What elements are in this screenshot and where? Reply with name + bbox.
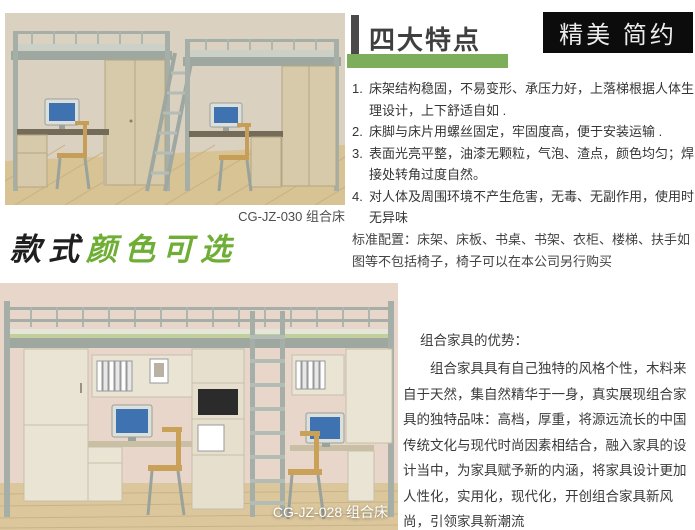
- feature-text-3: 表面光亮平整，油漆无颗粒，气泡、渣点，颜色均匀；焊接处转角过度自然。: [369, 146, 694, 183]
- slogan-green-part: 颜色可选: [86, 232, 238, 267]
- section-title: 四大特点: [369, 20, 481, 57]
- product-code-caption-1: CG-JZ-030 组合床: [150, 206, 345, 225]
- feature-item-3: 3. 表面光亮平整，油漆无颗粒，气泡、渣点，颜色均匀；焊接处转角过度自然。: [352, 143, 694, 186]
- feature-text-2: 床脚与床片用螺丝固定，牢固度高，便于安装运输 .: [369, 124, 662, 139]
- feature-number-2: 2.: [352, 121, 363, 143]
- feature-number-1: 1.: [352, 78, 363, 100]
- feature-text-1: 床架结构稳固，不易变形、承压力好，上落梯根据人体生理设计，上下舒适自如 .: [369, 81, 694, 118]
- feature-number-4: 4.: [352, 186, 363, 208]
- feature-text-4: 对人体及周围环境不产生危害，无毒、无副作用，使用时无异味: [369, 189, 694, 226]
- product-photo-cg-jz-030: [5, 13, 345, 205]
- feature-item-1: 1. 床架结构稳固，不易变形、承压力好，上落梯根据人体生理设计，上下舒适自如 .: [352, 78, 694, 121]
- product-code-caption-2: CG-JZ-028 组合床: [273, 502, 388, 522]
- advantages-paragraph: 组合家具具有自己独特的风格个性，木料来自于天然，集自然精华于一身，真实展现组合家…: [403, 356, 692, 530]
- advantages-heading: 组合家具的优势：: [420, 329, 528, 349]
- quality-badge: 精美 简约: [543, 12, 693, 53]
- title-accent-bar: [351, 15, 359, 55]
- green-underline-bar: [347, 54, 508, 68]
- feature-number-3: 3.: [352, 143, 363, 165]
- style-color-slogan: 款式颜色可选: [10, 224, 238, 269]
- feature-item-4: 4. 对人体及周围环境不产生危害，无毒、无副作用，使用时无异味: [352, 186, 694, 229]
- slogan-black-part: 款式: [10, 232, 86, 267]
- loft-bed-illustration-1: [5, 13, 345, 205]
- feature-item-2: 2. 床脚与床片用螺丝固定，牢固度高，便于安装运输 .: [352, 121, 694, 143]
- product-photo-cg-jz-028: CG-JZ-028 组合床: [0, 283, 398, 530]
- standard-configuration-note: 标准配置：床架、床板、书桌、书架、衣柜、楼梯、扶手如图等不包括椅子，椅子可以在本…: [352, 229, 694, 272]
- feature-list: 1. 床架结构稳固，不易变形、承压力好，上落梯根据人体生理设计，上下舒适自如 .…: [352, 78, 694, 229]
- product-detail-page: CG-JZ-030 组合床 款式颜色可选: [0, 0, 695, 530]
- loft-bed-illustration-2: [0, 283, 398, 530]
